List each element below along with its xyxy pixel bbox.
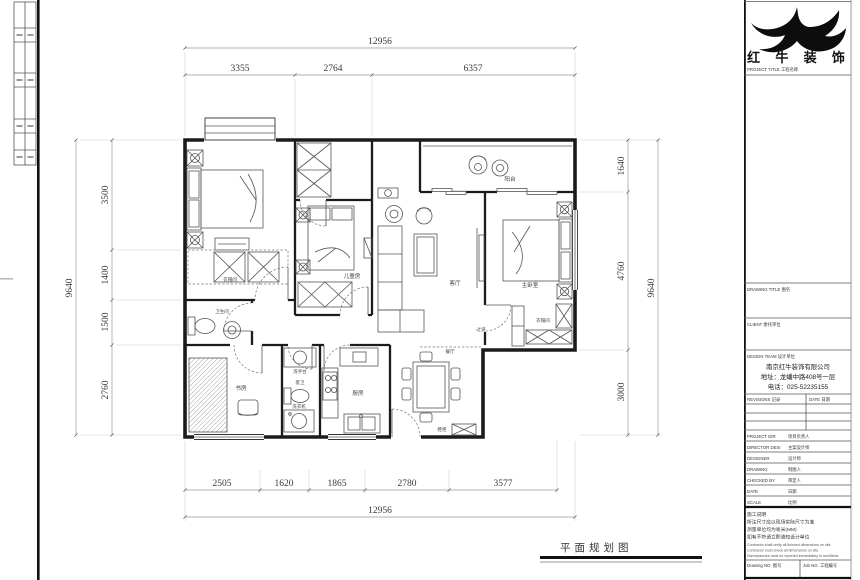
dim-top-seg1: 3355 [231,64,250,74]
plan-title-group: 平面规划图 [540,541,702,562]
dim-left-seg4: 2760 [101,380,111,399]
row-date-label: DATE [747,489,758,494]
note-cn-4: 如有不符请立即通知设计单位 [747,534,810,541]
door-arc [288,345,312,369]
nightstand-icon [557,284,572,299]
row-drawing-label: DRAWING [747,467,768,472]
nightstand-icon [187,232,203,248]
company-address: 地址：龙蟠中路408号一层 [761,372,836,381]
cabinet [340,348,378,366]
brand-name: 红 牛 装 饰 [747,50,851,65]
row-checked-label: CHECKED BY [747,478,775,483]
cad-sheet: 衣帽间 儿童房 客厅 阳台 主卧室 卫生间 书房 过道 洗手台 客卫 洗衣机 厨… [0,0,860,580]
room-label-closet: 衣帽间 [223,276,237,283]
master-bedroom-furniture [503,202,572,346]
fold-strip [0,0,40,580]
chair-icon [451,388,460,400]
bay-window [204,118,276,143]
dim-right-seg3: 3000 [617,382,627,401]
note-en-2: Contractor must check all dimensions on … [747,549,819,553]
company-phone: 电话：025-52235155 [768,382,829,391]
armchair-icon [386,206,403,223]
room-label-master-closet: 衣帽间 [536,317,550,324]
dim-left-seg2: 1400 [101,265,111,284]
drawing-title-label: DRAWING TITLE 图名 [747,286,790,293]
company-name: 南京红牛装饰有限公司 [766,362,830,371]
note-cn-3: 测量单位均为毫米(MM) [747,526,797,533]
bed [187,168,263,230]
row-drawing-value: 制图人 [788,466,802,473]
client-label: CLIENT 委托单位 [747,321,781,328]
room-label-kitchen: 厨房 [352,389,364,397]
row-project-dir-label: PROJECT DIR [747,434,776,439]
left-bedroom-furniture [187,150,288,284]
chair-icon [451,368,460,380]
floor-plan-drawing: 衣帽间 儿童房 客厅 阳台 主卧室 卫生间 书房 过道 洗手台 客卫 洗衣机 厨… [0,0,860,580]
design-team-label: DESIGN TEAM 设计单位 [747,353,796,360]
guest-bath-fixtures [284,348,316,432]
dim-bottom-seg4: 2780 [398,479,417,489]
note-cn-1: 施工说明 [747,511,766,518]
revisions-label: REVISIONS 记录 [747,396,781,402]
kitchen-fixtures [322,348,380,433]
dim-top-seg2: 2764 [324,64,343,74]
tv-panel [477,228,484,288]
room-labels: 衣帽间 儿童房 客厅 阳台 主卧室 卫生间 书房 过道 洗手台 客卫 洗衣机 厨… [215,175,550,433]
row-scale-label: SCALE [747,500,761,505]
row-project-dir-value: 项目负责人 [788,433,810,440]
title-block: 红 牛 装 饰 PROJECT TITLE 工程名称 DRAWING TITLE… [744,0,852,580]
dim-top-total: 12956 [368,37,392,47]
row-scale-value: 比例 [788,499,797,506]
dim-bottom-seg2: 1620 [275,479,294,489]
armchair-icon [416,208,432,224]
door-arc [234,345,262,373]
dresser [215,238,249,250]
room-label-bath: 卫生间 [215,308,229,315]
bathroom-fixtures [188,317,241,339]
row-designer-value: 设计师 [788,455,802,462]
room-label-master: 主卧室 [522,281,539,289]
door-arc [340,287,368,315]
door-arc [255,267,288,300]
room-label-dining: 餐厅 [445,348,455,355]
room-label-guest-bath: 客卫 [295,379,305,386]
dim-bottom-total: 12956 [368,506,392,516]
bed [503,219,572,282]
dining-table [413,362,449,412]
coffee-table [414,234,437,276]
room-label-washstand: 洗手台 [293,368,307,375]
dim-right-seg2: 4760 [617,261,627,280]
study-window [194,433,264,441]
room-label-kids: 儿童房 [344,272,361,280]
dim-right-total: 9640 [647,278,657,297]
dim-bottom-seg1: 2505 [213,479,232,489]
doors [224,200,511,437]
row-director-label: DIRECTOR DESI [747,445,781,450]
note-cn-2: 所注尺寸应以现场实际尺寸为准 [747,519,814,526]
room-label-shoe: 鞋柜 [437,426,447,433]
stove-icon [323,372,337,400]
exterior-walls [185,140,575,437]
armchair-icon [469,156,487,174]
row-designer-label: DESIGNER [747,456,769,461]
wet-bar-sink-icon [378,188,398,198]
kitchen-window [328,433,376,441]
plan-title: 平面规划图 [560,541,633,554]
door-arc [392,409,420,437]
project-title-label: PROJECT TITLE 工程名称 [747,66,799,73]
washbasin-icon [224,322,241,339]
storage-cabinets [297,143,398,198]
row-director-value: 主案设计师 [788,444,810,451]
room-label-hall: 过道 [476,326,486,333]
title-underline [540,556,702,559]
dim-right-seg1: 1640 [617,156,627,175]
revision-date-label: DATE 日期 [809,397,830,403]
dim-bottom-seg5: 3577 [494,479,513,489]
nightstand-icon [187,150,203,166]
row-checked-value: 审定人 [788,477,802,484]
rug [189,358,227,432]
duct-shaft [364,238,372,258]
frame-border-left [37,0,40,580]
chair-icon [402,368,411,380]
wardrobe-icon [188,250,288,284]
interior-walls [185,140,575,437]
study-furniture [189,358,258,432]
chair-icon [238,400,258,415]
room-label-laundry: 洗衣机 [292,403,306,410]
dining-furniture [402,352,476,435]
dim-top-seg3: 6357 [464,64,483,74]
dim-left-seg1: 3500 [101,185,111,204]
armchair-icon [492,160,508,176]
note-en-1: Contractor shall verify all finished dim… [747,543,832,547]
door-arc [224,303,252,331]
bed [308,206,354,270]
kids-room-furniture [296,206,372,307]
washing-machine-icon [284,410,314,432]
room-label-living: 客厅 [449,279,461,287]
chair-icon [420,413,432,422]
dim-left-total: 9640 [65,278,75,297]
toilet-icon [188,317,215,335]
door-arc [485,305,511,331]
room-label-balcony: 阳台 [504,175,516,183]
toilet-icon [284,388,309,404]
dim-bottom-seg3: 1865 [328,479,347,489]
brand-logo [751,7,846,52]
note-en-3: Discrepancies must be reported immediate… [747,554,839,558]
job-no-label: Job NO. 工程编号 [803,562,837,569]
chair-icon [420,352,432,361]
windows [194,118,579,441]
entry-door-opening [391,433,421,441]
wardrobe-icon [512,304,572,346]
balcony-furniture [469,156,508,176]
chair-icon [402,388,411,400]
sink-icon [344,414,380,433]
row-date-value: 日期 [788,489,797,495]
wardrobe-icon [298,282,352,307]
nightstand-icon [557,202,572,217]
door-arc [324,345,350,371]
shoe-cabinet [452,424,476,435]
living-room-furniture [378,206,484,333]
dim-left-seg3: 1500 [101,312,111,331]
drawing-no-label: Drawing NO. 图号 [747,563,781,569]
room-label-study: 书房 [235,384,247,392]
